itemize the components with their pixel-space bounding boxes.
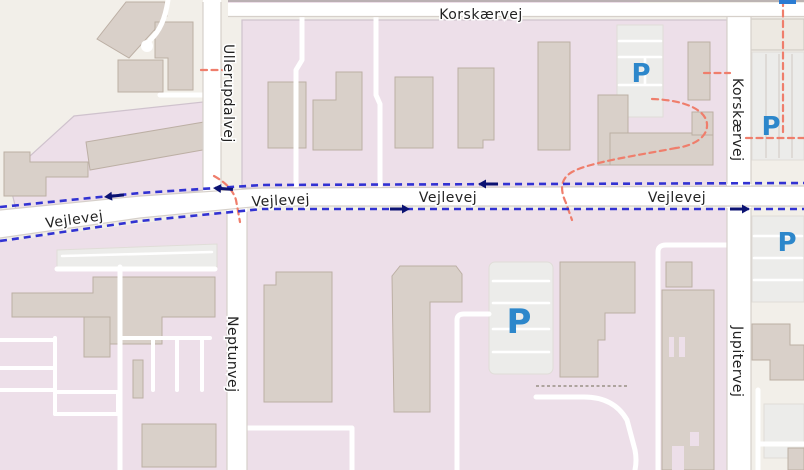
street-label-jupitervej: Jupitervej bbox=[729, 325, 745, 397]
street-label-korskaervej-vertical: Korskærvej bbox=[729, 78, 745, 162]
building bbox=[458, 68, 494, 148]
building bbox=[538, 42, 570, 150]
building bbox=[688, 42, 710, 100]
building bbox=[268, 82, 306, 148]
map-canvas[interactable]: Korskærvej Vejlevej Vejlevej Vejlevej Ve… bbox=[0, 0, 804, 470]
building bbox=[142, 424, 216, 467]
street-label-neptunvej: Neptunvej bbox=[224, 316, 240, 393]
building bbox=[264, 272, 332, 402]
parking-icon: P bbox=[631, 59, 650, 89]
building bbox=[788, 448, 804, 470]
map-svg: Korskærvej Vejlevej Vejlevej Vejlevej Ve… bbox=[0, 0, 804, 470]
parking-icon: P bbox=[777, 228, 796, 258]
parking-icon: P bbox=[761, 112, 780, 142]
road-ullerupdalvej bbox=[203, 0, 221, 192]
map-marker-partial bbox=[779, 0, 796, 4]
building bbox=[666, 262, 692, 287]
building bbox=[395, 77, 433, 148]
building bbox=[84, 317, 110, 357]
street-label-vejlevej: Vejlevej bbox=[251, 191, 310, 210]
building bbox=[133, 360, 143, 398]
parking-lot bbox=[752, 52, 804, 160]
street-label-vejlevej: Vejlevej bbox=[648, 190, 706, 206]
cul-de-sac bbox=[141, 40, 153, 52]
street-label-vejlevej: Vejlevej bbox=[419, 190, 477, 206]
building bbox=[610, 133, 713, 165]
building bbox=[662, 290, 714, 470]
building bbox=[118, 60, 163, 92]
parking-icon: P bbox=[507, 302, 532, 342]
street-label-ullerupdalvej: Ullerupdalvej bbox=[220, 44, 236, 143]
street-label-korskaervej: Korskærvej bbox=[439, 7, 523, 23]
